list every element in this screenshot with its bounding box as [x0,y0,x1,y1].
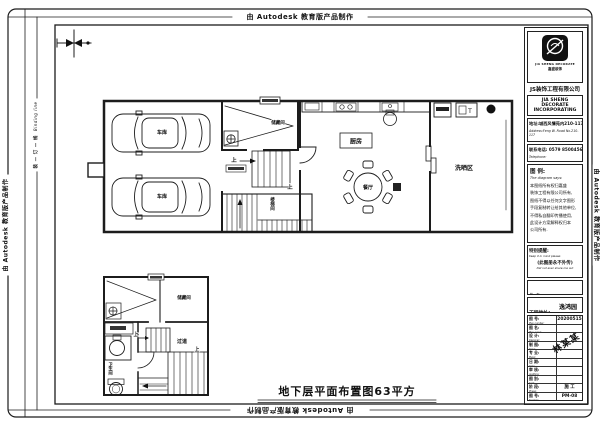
row-label-en: Phase: [529,390,555,392]
legend-text-line: 公司所有. [530,226,580,233]
caption-underline [258,400,436,403]
legend-subtitle: The diagram says: [530,176,580,180]
heater-t-mark: T [467,108,472,115]
address-box: 地址:城西风情苑内210-117号 Address:Feng W. Road N… [527,118,583,142]
notice-subtitle: Keep it in mind please: [529,254,581,258]
company-name-en-2: INCORPORATING [528,108,582,113]
up-label-2: 上 [287,183,293,191]
room-label-laundry: 洗晒区 [455,164,473,172]
row-value: PM-08 [557,393,582,401]
autodesk-stamp-right: 由 Autodesk 教育版产品制作 [593,164,600,265]
table-row: 图 别:Sort: [528,376,582,385]
legend-box: 图 例: The diagram says: 本图纸所有权归嘉盛 装饰工程有限公… [527,164,583,243]
company-name-cn: JS装饰工程有限公司 [525,85,585,93]
room-label-storage: 储藏间 [271,119,285,126]
phone-en: Telephone: [529,155,581,159]
laundry-fixtures [434,103,506,210]
legend-text-line: 装饰工程有限公司所有, [530,189,580,196]
small-room-label-hall: 过道 [177,338,187,345]
autodesk-stamp-bottom: 由 Autodesk 教育版产品制作 [242,405,357,415]
sliding-door [426,146,436,173]
legend-title: 图 例: [530,167,580,175]
legend-text-line: 手段复制转让给其他单位, [530,204,580,211]
legend-text-line: 不得私自翻印传播使用, [530,212,580,219]
table-row: 审 核:Auditing: [528,367,582,376]
row-label-en: Plan name: [529,331,555,333]
main-floor-plan [88,97,512,232]
company-name-box: JIA SHENG DECORATE INCORPORATING [527,95,583,116]
small-detail-plan [104,274,208,396]
row-value: 20200515 [557,316,582,324]
car-icon [112,111,210,219]
interior-walls [222,101,430,232]
site-label: 工程地址: [529,311,550,313]
address-en: Address:Feng W. Road No.210-117 [529,129,581,137]
owner-row: 业 主: Owner: [527,280,583,295]
address-cn: 地址:城西风情苑内210-117号 [529,121,581,127]
small-bottom-stair [138,352,208,395]
binding-line-mark: 装 — 订 — 线Binding line [33,99,39,172]
plan-linework: 车库 车库 储藏间 厨房 餐厅 洗晒区 楼梯间 上 上 T 储藏间 过道 卫生间… [0,0,600,426]
small-up-label-2: 上 [194,346,199,353]
room-label-kitchen: 厨房 [350,138,362,146]
notice-box: 特别提醒: Keep it in mind please: (此图册永不外传) … [527,245,583,278]
up-label-1: 上 [231,156,237,164]
binding-line-cn: 装 — 订 — 线 [34,135,39,168]
site-row: 工程地址: Construction address: 逸鸿园 [527,297,583,313]
row-label-en: Auditing: [529,373,555,375]
row-value [557,367,582,375]
row-label-en: Plan number: [529,322,555,324]
phone-cn: 联系电话: 0579 8500456 [529,147,581,153]
row-label-en: Designer: [529,339,555,341]
room-label-dining: 餐厅 [362,184,373,191]
company-name-en-1: JIA SHENG DECORATE [528,98,582,108]
small-room-label-storage: 储藏间 [177,294,191,301]
row-label-en: Date: [529,365,555,367]
phone-box: 联系电话: 0579 8500456 Telephone: [527,144,583,162]
row-label-en: Sort: [529,382,555,384]
table-row: 图 号:Number: PM-08 [528,393,582,401]
row-value [557,376,582,384]
legend-text-line: 本图纸所有权归嘉盛 [530,182,580,189]
small-mid-stair [139,328,170,352]
table-row: 日 期:Date: [528,359,582,368]
kitchen-counter [302,101,430,126]
company-logo-icon [542,35,568,61]
table-row: 图 号:Plan number: 20200515 [528,316,582,325]
small-room-label-bath: 卫生间 [108,361,113,377]
company-logo-box: JIA SHENG DECORATE 嘉盛装饰 JIASHENG DECORAT… [527,31,583,83]
small-storage [106,274,164,319]
autodesk-stamp-left: 由 Autodesk 教育版产品制作 [1,174,10,275]
small-up-label-1: 上 [133,331,138,338]
table-row: 阶 段:Phase: 施 工 [528,384,582,393]
binding-line-en: Binding line [33,102,38,132]
legend-text-line: 图纸不得以任何文字图形 [530,197,580,204]
north-arrow-icon [57,30,91,57]
drawing-sheet: 车库 车库 储藏间 厨房 餐厅 洗晒区 楼梯间 上 上 T 储藏间 过道 卫生间… [0,0,600,426]
notice-body-en: Did not ever share me out [529,266,581,270]
owner-label: 业 主: [529,294,542,295]
room-label-garage-1: 车库 [157,129,167,136]
kitchen-door [300,147,316,163]
room-label-garage-2: 车库 [157,193,167,200]
autodesk-stamp-top: 由 Autodesk 教育版产品制作 [242,12,357,22]
row-value [557,359,582,367]
upper-stair [240,151,290,187]
drawing-caption: 地下层平面布置图63平方 [256,383,438,399]
logo-caption: JIA SHENG DECORATE [528,62,582,66]
site-value: 逸鸿园 [559,302,577,311]
room-label-stairwell: 楼梯间 [270,196,275,212]
logo-sub-cn: 嘉盛装饰 [528,67,582,72]
row-value: 施 工 [557,384,582,392]
main-stair [222,165,312,232]
legend-text-line: 此设计方案解释权归本 [530,219,580,226]
row-label-en: Number: [529,399,555,401]
